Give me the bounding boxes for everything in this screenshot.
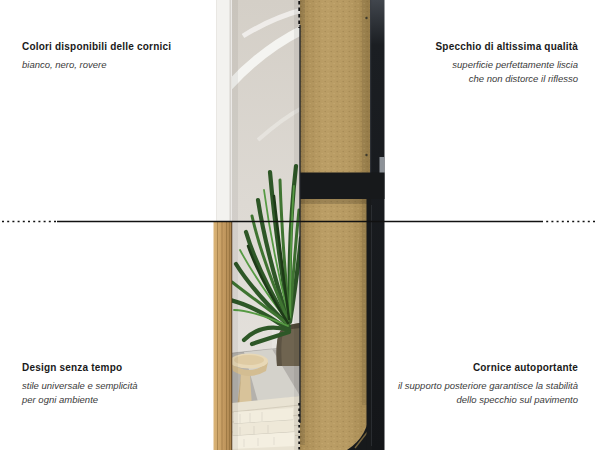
folded-towels — [232, 408, 295, 449]
annotation-mirror-quality: Specchio di altissima qualità superficie… — [328, 40, 578, 85]
annotation-title: Design senza tempo — [22, 361, 272, 374]
frame-color-strip-white — [216, 0, 232, 222]
annotation-title: Colori disponibili delle cornici — [22, 40, 272, 53]
frame-crossbar — [300, 173, 385, 200]
annotation-subtitle-line: dello specchio sul pavimento — [328, 393, 578, 407]
annotation-title: Cornice autoportante — [328, 361, 578, 374]
annotation-title: Specchio di altissima qualità — [328, 40, 578, 53]
annotation-subtitle-line: il supporto posteriore garantisce la sta… — [328, 379, 578, 393]
frame-color-strip-oak — [214, 222, 233, 450]
annotation-subtitle-line: per ogni ambiente — [22, 393, 272, 407]
feature-diagram: Colori disponibili delle cornici bianco,… — [0, 0, 600, 450]
annotation-freestanding-frame: Cornice autoportante il supporto posteri… — [328, 361, 578, 406]
annotation-subtitle-line: stile universale e semplicità — [22, 379, 272, 393]
annotation-subtitle-line: che non distorce il riflesso — [328, 72, 578, 86]
annotation-subtitle-line: bianco, nero, rovere — [22, 58, 272, 72]
stand-leg — [367, 199, 372, 450]
annotation-timeless-design: Design senza tempo stile universale e se… — [22, 361, 272, 406]
annotation-frame-colors: Colori disponibili delle cornici bianco,… — [22, 40, 272, 72]
annotation-subtitle-line: superficie perfettamente liscia — [328, 58, 578, 72]
